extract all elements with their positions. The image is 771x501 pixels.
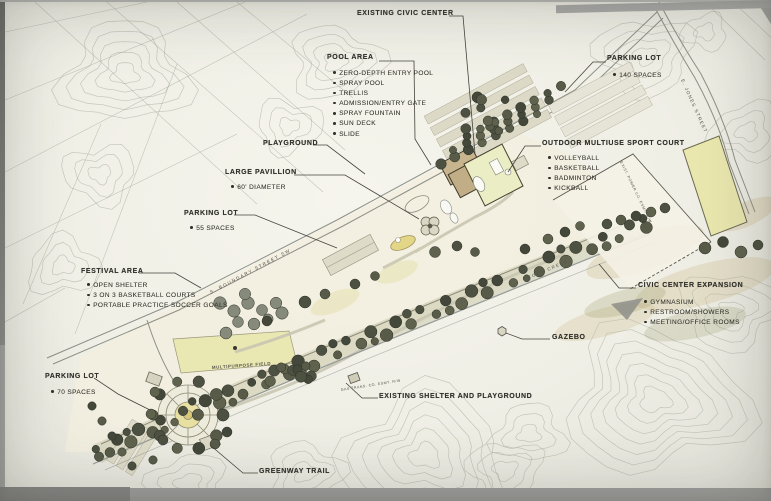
callout-item: 3 ON 3 BASKETBALL COURTS xyxy=(87,293,228,300)
plan-paper: S. BOUNDARY STREET SW E. JONES STREET TO… xyxy=(5,2,771,488)
callout-item: TRELLIS xyxy=(333,91,433,98)
gazebo-feature xyxy=(498,327,506,337)
callout-item: BASKETBALL xyxy=(548,166,685,173)
callout-item-list: VOLLEYBALL BASKETBALL BADMINTON KICKBALL xyxy=(548,156,685,193)
callout-title: PARKING LOT xyxy=(607,55,662,63)
photo-edge-left xyxy=(0,0,5,345)
callout-item-list: 60' DIAMETER xyxy=(231,185,297,192)
callout-item: ZERO-DEPTH ENTRY POOL xyxy=(333,71,433,78)
callout-item: GYMNASIUM xyxy=(644,300,743,307)
street-label-jones: E. JONES STREET xyxy=(680,78,708,133)
callout-parking-lot-north: PARKING LOT 140 SPACES xyxy=(607,55,662,83)
callout-item: MEETING/OFFICE ROOMS xyxy=(644,320,743,327)
callout-existing-shelter: EXISTING SHELTER AND PLAYGROUND xyxy=(379,393,532,401)
callout-item-list: ZERO-DEPTH ENTRY POOL SPRAY POOL TRELLIS… xyxy=(333,71,433,138)
callout-item: SPRAY FOUNTAIN xyxy=(333,111,433,118)
callout-item: SLIDE xyxy=(333,132,433,139)
callout-title: POOL AREA xyxy=(327,54,433,62)
callout-item: SPRAY POOL xyxy=(333,81,433,88)
callout-item-list: 140 SPACES xyxy=(613,73,662,80)
callout-item: PORTABLE PRACTICE SOCCER GOALS xyxy=(87,303,228,310)
callout-title: EXISTING CIVIC CENTER xyxy=(357,10,454,18)
callout-item-list: GYMNASIUM RESTROOM/SHOWERS MEETING/OFFIC… xyxy=(644,300,743,327)
callout-item: 140 SPACES xyxy=(613,73,662,80)
callout-title: GREENWAY TRAIL xyxy=(259,468,330,476)
callout-title: CIVIC CENTER EXPANSION xyxy=(638,282,743,290)
callout-title: EXISTING SHELTER AND PLAYGROUND xyxy=(379,393,532,401)
callout-title: GAZEBO xyxy=(552,334,586,342)
callout-item-list: 55 SPACES xyxy=(190,226,238,233)
callout-existing-civic-center: EXISTING CIVIC CENTER xyxy=(357,10,454,18)
callout-item: 55 SPACES xyxy=(190,226,238,233)
callout-sport-court: OUTDOOR MULTIUSE SPORT COURT VOLLEYBALL … xyxy=(542,140,685,196)
callout-item-list: OPEN SHELTER 3 ON 3 BASKETBALL COURTS PO… xyxy=(87,283,228,310)
photo-edge-top xyxy=(0,0,771,2)
callout-title: OUTDOOR MULTIUSE SPORT COURT xyxy=(542,140,685,148)
plan-photo: S. BOUNDARY STREET SW E. JONES STREET TO… xyxy=(0,0,771,501)
callout-title: FESTIVAL AREA xyxy=(81,268,228,276)
callout-title: PARKING LOT xyxy=(184,210,238,218)
callout-civic-center-expansion: CIVIC CENTER EXPANSION GYMNASIUM RESTROO… xyxy=(638,282,743,330)
callout-item-list: 70 SPACES xyxy=(51,390,99,397)
callout-large-pavillion: LARGE PAVILLION 60' DIAMETER xyxy=(225,169,297,195)
callout-title: LARGE PAVILLION xyxy=(225,169,297,177)
callout-title: PARKING LOT xyxy=(45,373,99,381)
callout-parking-lot-central: PARKING LOT 55 SPACES xyxy=(184,210,238,236)
callout-item: RESTROOM/SHOWERS xyxy=(644,310,743,317)
callout-item: BADMINTON xyxy=(548,176,685,183)
callout-title: PLAYGROUND xyxy=(263,140,318,148)
callout-pool-area: POOL AREA ZERO-DEPTH ENTRY POOL SPRAY PO… xyxy=(327,54,433,142)
callout-greenway-trail: GREENWAY TRAIL xyxy=(259,468,330,476)
callout-gazebo: GAZEBO xyxy=(552,334,586,342)
callout-item: SUN DECK xyxy=(333,121,433,128)
callout-item: ADMISSION/ENTRY GATE xyxy=(333,101,433,108)
photo-edge-bottom-left xyxy=(0,487,130,501)
callout-parking-lot-west: PARKING LOT 70 SPACES xyxy=(45,373,99,400)
callout-item: VOLLEYBALL xyxy=(548,156,685,163)
callout-item: KICKBALL xyxy=(548,186,685,193)
existing-shelter-feature xyxy=(348,373,360,384)
large-pavillion-feature xyxy=(421,217,439,235)
callout-festival-area: FESTIVAL AREA OPEN SHELTER 3 ON 3 BASKET… xyxy=(81,268,228,313)
callout-item: 70 SPACES xyxy=(51,390,99,397)
callout-playground: PLAYGROUND xyxy=(263,140,318,148)
callout-item: OPEN SHELTER xyxy=(87,283,228,290)
callout-item: 60' DIAMETER xyxy=(231,185,297,192)
